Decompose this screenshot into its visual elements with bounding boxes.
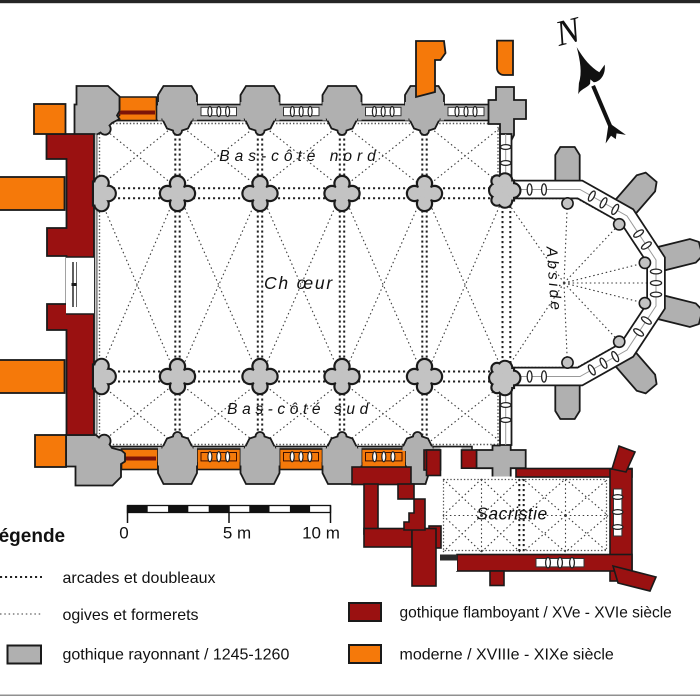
svg-text:ogives et formerets: ogives et formerets [63,607,199,624]
svg-text:Bas-côté sud: Bas-côté sud [227,401,373,418]
svg-text:Abside: Abside [542,245,564,314]
svg-text:moderne / XVIIIe - XIXe siècle: moderne / XVIIIe - XIXe siècle [400,647,614,664]
svg-text:10 m: 10 m [302,524,340,543]
svg-text:0: 0 [119,524,128,543]
svg-text:gothique flamboyant / XVe - XV: gothique flamboyant / XVe - XVIe siècle [400,605,672,622]
svg-text:Ch œur: Ch œur [264,273,334,293]
svg-text:Légende: Légende [0,526,65,547]
svg-text:N: N [550,9,586,54]
svg-text:5 m: 5 m [223,524,251,543]
svg-text:arcades et doubleaux: arcades et doubleaux [63,570,216,587]
svg-text:gothique rayonnant / 1245-1260: gothique rayonnant / 1245-1260 [63,647,290,664]
svg-text:Sacristie: Sacristie [476,504,548,524]
svg-text:Bas-côté nord: Bas-côté nord [219,148,381,165]
